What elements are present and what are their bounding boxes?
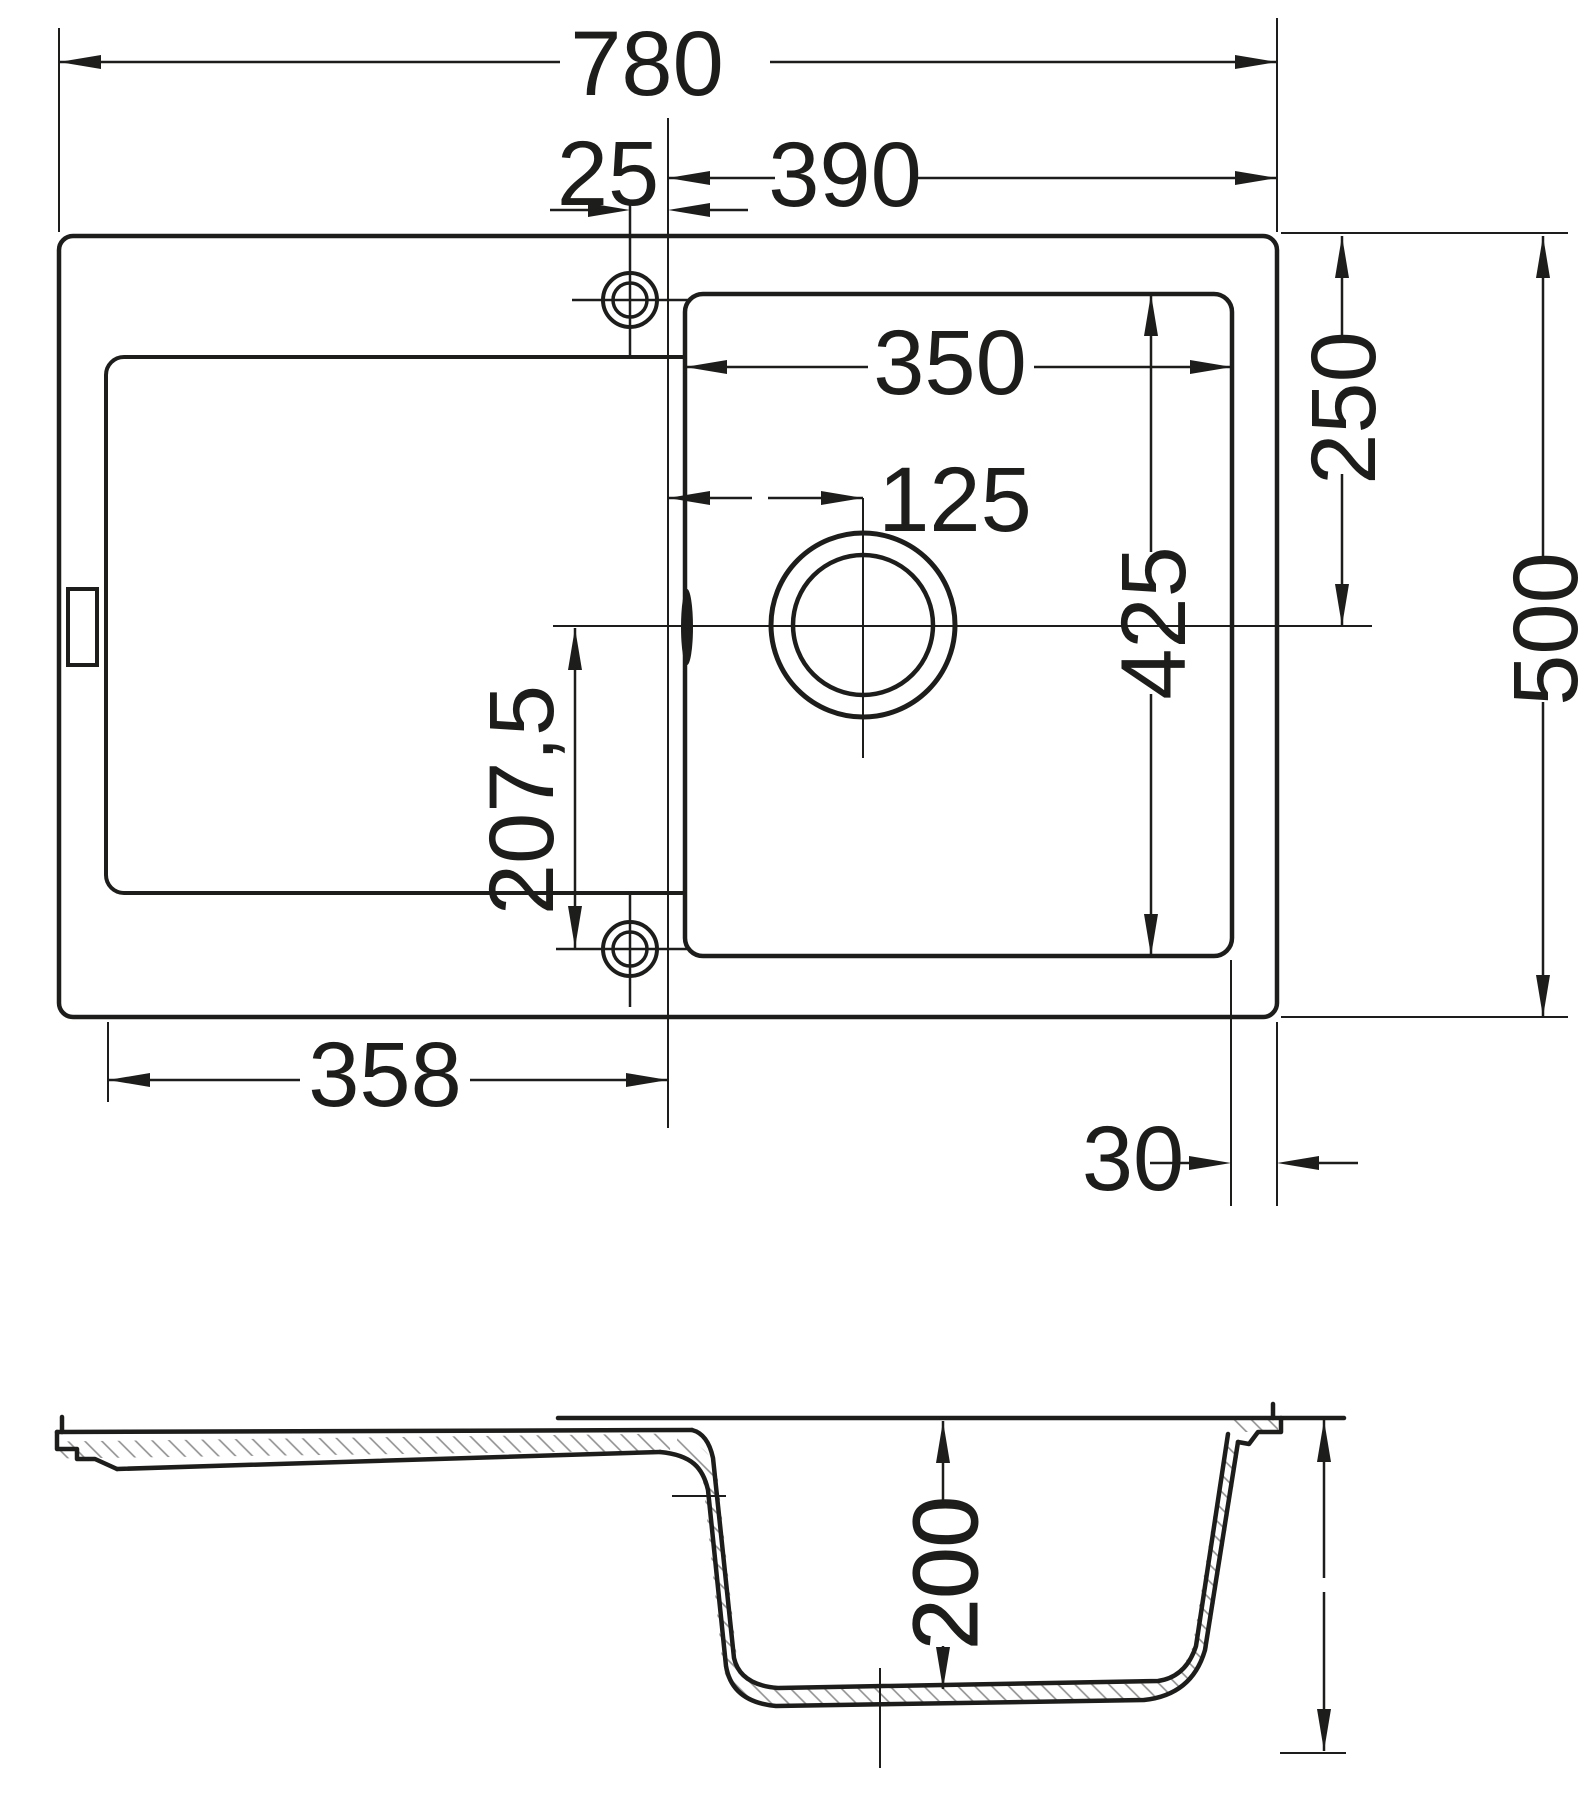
dim-label-250: 250: [1293, 331, 1395, 485]
dim-label-200: 200: [895, 1496, 997, 1650]
dim-label-358: 358: [308, 1024, 462, 1126]
dim-label-350: 350: [873, 312, 1027, 414]
sink-drawing-svg: 780 25 390 350 125 207,5 425 250 500 358…: [0, 0, 1590, 1800]
dim-label-780: 780: [570, 13, 724, 115]
dim-label-25: 25: [557, 123, 659, 225]
dim-label-125: 125: [878, 449, 1032, 551]
drainer-deck-surface: [57, 1430, 692, 1432]
dim-label-500: 500: [1495, 552, 1590, 706]
dim-label-425: 425: [1103, 546, 1205, 700]
section-view: 200: [57, 1404, 1346, 1768]
dim-label-30: 30: [1082, 1108, 1184, 1210]
section-reference-ticks: [672, 1496, 1346, 1768]
dim-label-390: 390: [768, 124, 922, 226]
technical-drawing-page: 780 25 390 350 125 207,5 425 250 500 358…: [0, 0, 1590, 1800]
plan-view: 780 25 390 350 125 207,5 425 250 500 358…: [59, 13, 1590, 1210]
dim-label-207-5: 207,5: [471, 685, 573, 915]
